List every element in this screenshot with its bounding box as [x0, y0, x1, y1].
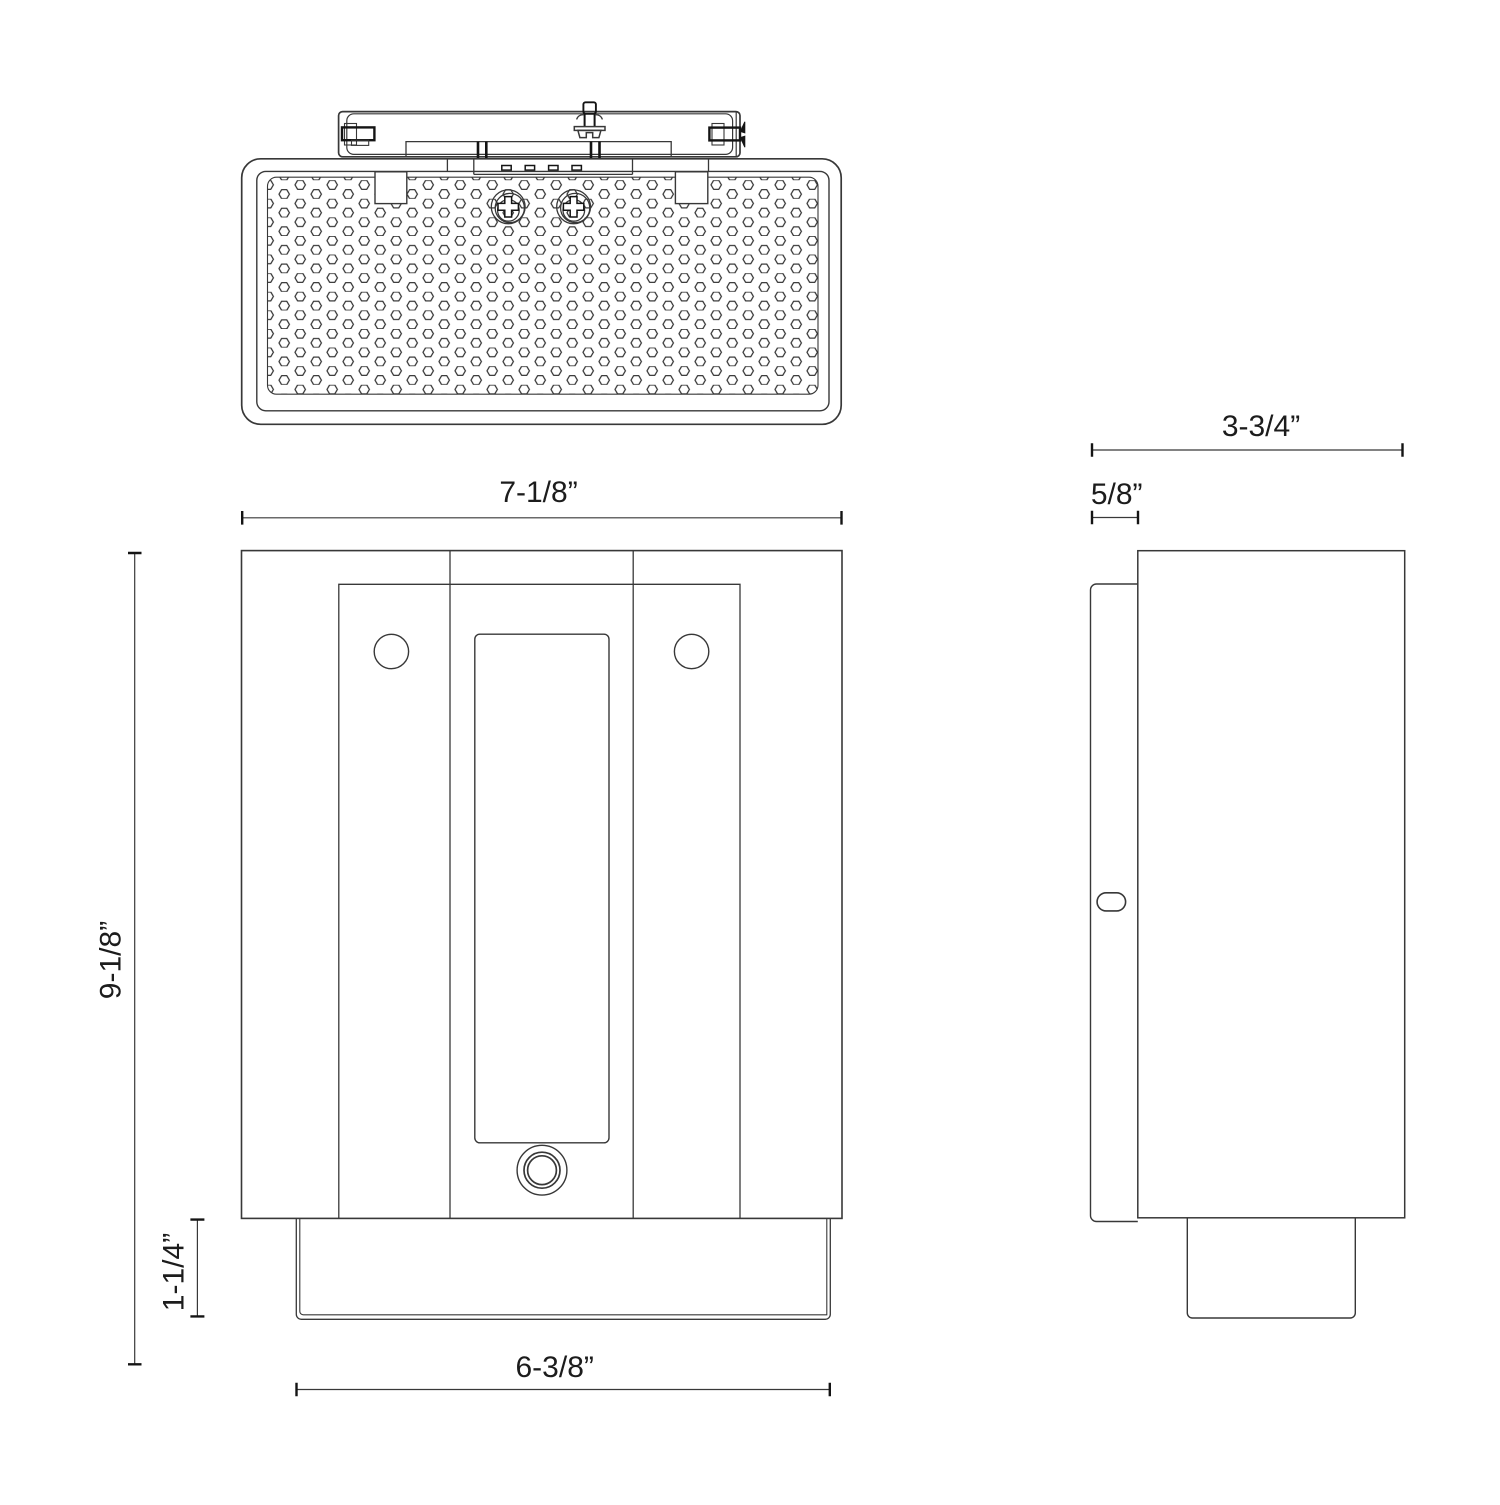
svg-text:9-1/8”: 9-1/8” — [95, 921, 128, 999]
svg-text:5/8”: 5/8” — [1091, 478, 1143, 511]
svg-text:7-1/8”: 7-1/8” — [499, 476, 577, 509]
svg-text:3-3/4”: 3-3/4” — [1222, 410, 1300, 443]
svg-text:1-1/4”: 1-1/4” — [158, 1233, 191, 1311]
svg-text:6-3/8”: 6-3/8” — [516, 1351, 594, 1384]
